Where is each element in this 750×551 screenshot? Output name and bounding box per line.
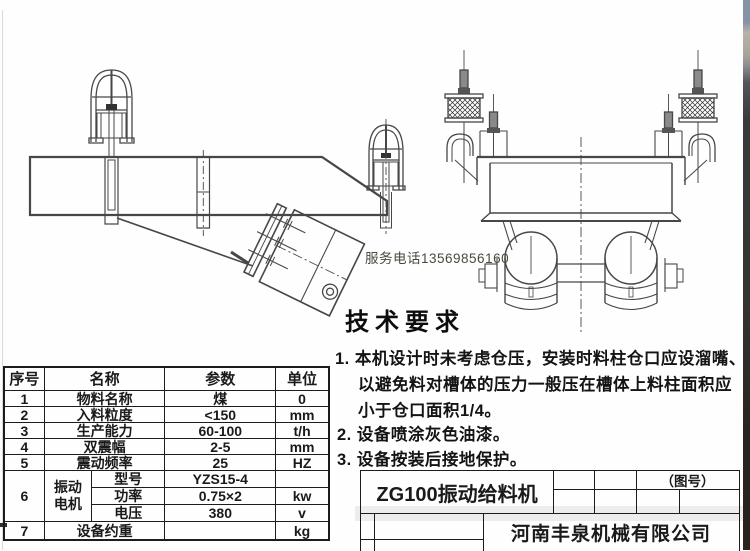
cell-unit: mm [276,407,329,423]
spec-table-header: 序号 名称 参数 单位 [4,367,329,391]
cell-param: 380 [165,505,276,522]
cell-unit: kw [276,488,329,505]
table-row: 5 震动频率 25 HZ [4,455,329,471]
cell-unit [276,471,329,488]
cell-motor-group: 振动 电机 [44,471,91,522]
cell-sub-name: 型号 [92,471,165,488]
header-name: 名称 [44,367,165,391]
cell-name: 设备约重 [44,522,165,541]
title-block: ZG100振动给料机 （图号） 河南丰泉机械有限公司 [360,470,740,551]
cell-param: 2-5 [165,439,276,455]
cell-no: 7 [4,522,44,541]
cell-name: 震动频率 [44,455,165,471]
cell-sub-name: 功率 [92,488,165,505]
cell-unit: v [276,505,329,522]
cell-name: 双震幅 [44,439,165,455]
table-row: 4 双震幅 2-5 mm [4,439,329,455]
table-row: 3 生产能力 60-100 t/h [4,423,329,439]
cell-no: 5 [4,455,44,471]
cell-param: <150 [165,407,276,423]
cell-sub-name: 电压 [92,505,165,522]
cell-name: 入料粒度 [44,407,165,423]
tech-requirement-line: 以避免料对槽体的压力一般压在槽体上料柱面积应 [358,371,732,395]
bell-hanger-right [367,119,405,234]
vibration-motor-side [238,199,365,316]
spec-table: 序号 名称 参数 单位 1 物料名称 煤 0 2 入料粒度 <150 mm 3 … [3,366,330,541]
cell-unit: mm [276,439,329,455]
side-view-drawing [30,70,405,316]
cell-param: 60-100 [165,423,276,439]
cell-no: 4 [4,439,44,455]
front-view-drawing [445,50,717,332]
cell-unit: kg [276,522,329,541]
cell-no: 6 [4,471,44,522]
tech-requirement-line: 1. 本机设计时未考虑仓压，安装时料柱仓口应设溜嘴、 [335,345,746,369]
cell-no: 1 [4,391,44,407]
header-param: 参数 [165,367,276,391]
title-block-product: ZG100振动给料机 [361,471,554,513]
cell-name: 物料名称 [44,391,165,407]
table-row: 2 入料粒度 <150 mm [4,407,329,423]
title-block-company: 河南丰泉机械有限公司 [483,513,739,551]
drawing-views [0,0,750,340]
tech-requirement-line: 2. 设备喷涂灰色油漆。 [337,421,510,445]
bell-hanger-left [89,70,134,210]
service-phone-watermark: 服务电话13569856160 [365,247,509,267]
tech-requirement-line: 3. 设备按装后接地保护。 [337,446,527,470]
drawing-sheet: { "watermarks": { "service_phone": "服务电话… [0,0,750,550]
tech-requirements-heading: 技术要求 [345,302,465,337]
cell-unit: t/h [276,423,329,439]
table-row-motor: 6 振动 电机 型号 YZS15-4 [4,471,329,488]
motor-group-label: 振动 电机 [45,479,91,514]
cell-param: 煤 [165,391,276,407]
table-row: 7 设备约重 kg [4,522,329,541]
cell-no: 3 [4,423,44,439]
table-row: 1 物料名称 煤 0 [4,391,329,407]
photo-right-edge-strip [743,0,750,550]
cell-param: 0.75×2 [165,488,276,505]
cell-name: 生产能力 [44,423,165,439]
cell-unit: HZ [276,455,329,471]
header-unit: 单位 [276,367,329,391]
tech-requirement-line: 小于仓口面积1/4。 [358,397,501,421]
cell-no: 2 [4,407,44,423]
header-no: 序号 [4,367,44,391]
cell-param: 25 [165,455,276,471]
cell-param [165,522,276,541]
cell-unit: 0 [276,391,329,407]
trough-side [30,150,387,266]
drawing-number-label: （图号） [636,471,739,489]
cell-param: YZS15-4 [165,471,276,488]
